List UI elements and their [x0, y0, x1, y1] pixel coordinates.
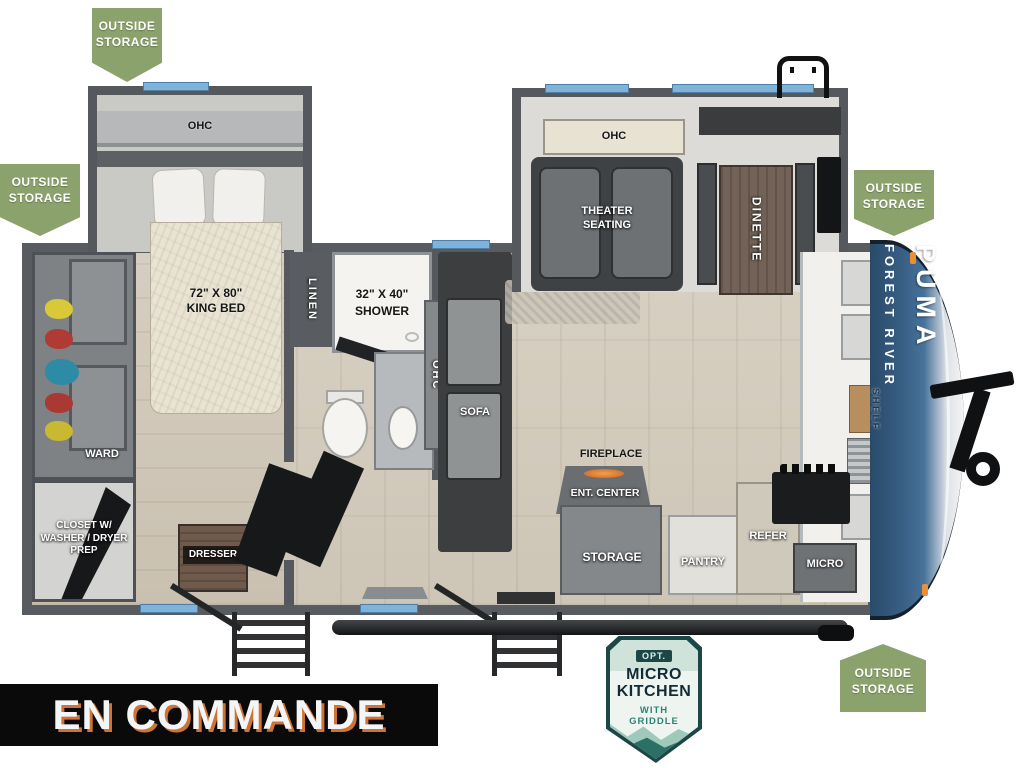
shelf-label: SHELF [868, 388, 881, 431]
dinette-table: DINETTE [719, 165, 793, 295]
king-bed-label: 72" X 80" KING BED [160, 286, 272, 316]
theater-seating-label: THEATER SEATING [561, 205, 653, 233]
shower-drain [405, 332, 419, 342]
pantry [668, 515, 738, 595]
closet-label-line1: CLOSET W/ [34, 520, 134, 533]
wardrobe-panel-bottom [69, 365, 127, 451]
badge-text-line2: STORAGE [92, 35, 162, 51]
option-badge-face: OPT. MICRO KITCHEN WITH GRIDDLE [610, 640, 698, 759]
pantry-label: PANTRY [672, 556, 734, 570]
awning-rail [332, 620, 848, 635]
badge-text-line1: OUTSIDE [854, 181, 934, 197]
wardrobe [32, 252, 136, 480]
linen-label: LINEN [304, 278, 318, 321]
bedroom-ohc-label: OHC [188, 120, 212, 134]
fireplace-label: FIREPLACE [570, 448, 652, 462]
hanging-clothes [45, 359, 79, 385]
dresser-label: DRESSER [189, 549, 237, 562]
outside-storage-badge-bottom-front: OUTSIDE STORAGE [840, 644, 926, 712]
badge-text-line1: OUTSIDE [0, 175, 80, 191]
entry-mat [362, 587, 428, 599]
theater-ohc-label: OHC [602, 130, 626, 144]
tv [817, 157, 841, 233]
badge-text-line1: OUTSIDE [840, 666, 926, 682]
dinette-bench-left [697, 163, 717, 285]
fireplace-glow [584, 469, 624, 478]
outside-storage-badge-top-left: OUTSIDE STORAGE [92, 8, 162, 82]
bath-sink [388, 406, 418, 450]
entry-landing [497, 592, 555, 604]
ward-label: WARD [78, 448, 126, 462]
ent-center-label: ENT. CENTER [560, 487, 650, 500]
theater-label-line2: SEATING [561, 219, 653, 233]
closet-label-line2: WASHER / DRYER [34, 533, 134, 546]
badge-text-line2: STORAGE [854, 197, 934, 213]
dinette-label: DINETTE [749, 197, 764, 262]
option-title-line1: MICRO [617, 667, 692, 684]
front-cabinet [841, 260, 873, 306]
status-banner-text: EN COMMANDE [53, 691, 386, 739]
theater-dinette-slide-out: OHC THEATER SEATING DINETTE [512, 88, 848, 292]
closet-label: CLOSET W/ WASHER / DRYER PREP [34, 520, 134, 558]
option-badge-content: OPT. MICRO KITCHEN WITH GRIDDLE [610, 640, 698, 759]
option-tag: OPT. [636, 650, 672, 662]
entry-steps-bedroom [232, 612, 310, 676]
sofa-cushion [446, 298, 502, 386]
option-title-line2: KITCHEN [617, 684, 692, 701]
status-banner: EN COMMANDE [0, 684, 438, 746]
grab-handle-bolt [812, 67, 816, 73]
badge-text-line2: STORAGE [840, 682, 926, 698]
option-subtitle: WITH GRIDDLE [629, 705, 679, 728]
bed-headboard [97, 151, 303, 167]
closet-label-line3: PREP [34, 545, 134, 558]
grab-handle-bolt [790, 67, 794, 73]
front-cap: FOREST RIVER PUMA [870, 240, 964, 620]
wardrobe-panel-top [69, 259, 127, 345]
option-subtitle-line2: GRIDDLE [629, 716, 679, 727]
bedroom-window [140, 604, 198, 613]
awning-rail-cap [818, 625, 854, 641]
tongue-jack-wheel [966, 452, 1000, 486]
badge-text-line2: STORAGE [0, 191, 80, 207]
bedroom-slide-window [143, 82, 209, 91]
grab-handle [777, 56, 829, 98]
shower-type-label: SHOWER [355, 304, 409, 319]
brand-model: PUMA [910, 244, 941, 616]
hanging-clothes [45, 299, 73, 319]
top-wall-window [432, 240, 490, 249]
cooktop [772, 472, 850, 524]
storage-label: STORAGE [572, 550, 652, 565]
king-bed [150, 222, 282, 414]
theater-slide-window-1 [545, 84, 629, 93]
cooktop-knobs [780, 464, 838, 474]
badge-text-line1: OUTSIDE [92, 19, 162, 35]
dinette-overhead [699, 107, 841, 135]
pillow-left [152, 168, 207, 229]
bedroom-overhead-cabinet: OHC [97, 111, 303, 147]
option-title: MICRO KITCHEN [617, 667, 692, 701]
hanging-clothes [45, 329, 73, 349]
hanging-clothes [45, 393, 73, 413]
linen-closet: LINEN [290, 252, 332, 347]
floorplan-canvas: OHC 72" X 80" KING BED WARD CLOSET W/ WA… [0, 0, 1024, 768]
refer-label: REFER [742, 530, 794, 544]
hall-window [360, 604, 418, 613]
theater-label-line1: THEATER [561, 205, 653, 219]
king-bed-size: 72" X 80" [160, 286, 272, 301]
bedroom-bath-wall-lower [284, 560, 294, 605]
front-cabinet [841, 314, 873, 360]
king-bed-type: KING BED [160, 301, 272, 316]
hanging-clothes [45, 421, 73, 441]
brand-manufacturer: FOREST RIVER [882, 244, 897, 616]
toilet [322, 398, 368, 458]
shower-size-label: 32" X 40" [356, 287, 409, 302]
micro-kitchen-option-badge: OPT. MICRO KITCHEN WITH GRIDDLE [606, 636, 702, 763]
micro-label: MICRO [799, 558, 851, 572]
option-subtitle-line1: WITH [629, 705, 679, 716]
outside-storage-badge-front-right: OUTSIDE STORAGE [854, 170, 934, 236]
sofa [438, 252, 512, 552]
sofa-label: SOFA [450, 406, 500, 420]
outside-storage-badge-rear-left: OUTSIDE STORAGE [0, 164, 80, 236]
pillow-right [212, 168, 266, 228]
theater-overhead-cabinet: OHC [543, 119, 685, 155]
